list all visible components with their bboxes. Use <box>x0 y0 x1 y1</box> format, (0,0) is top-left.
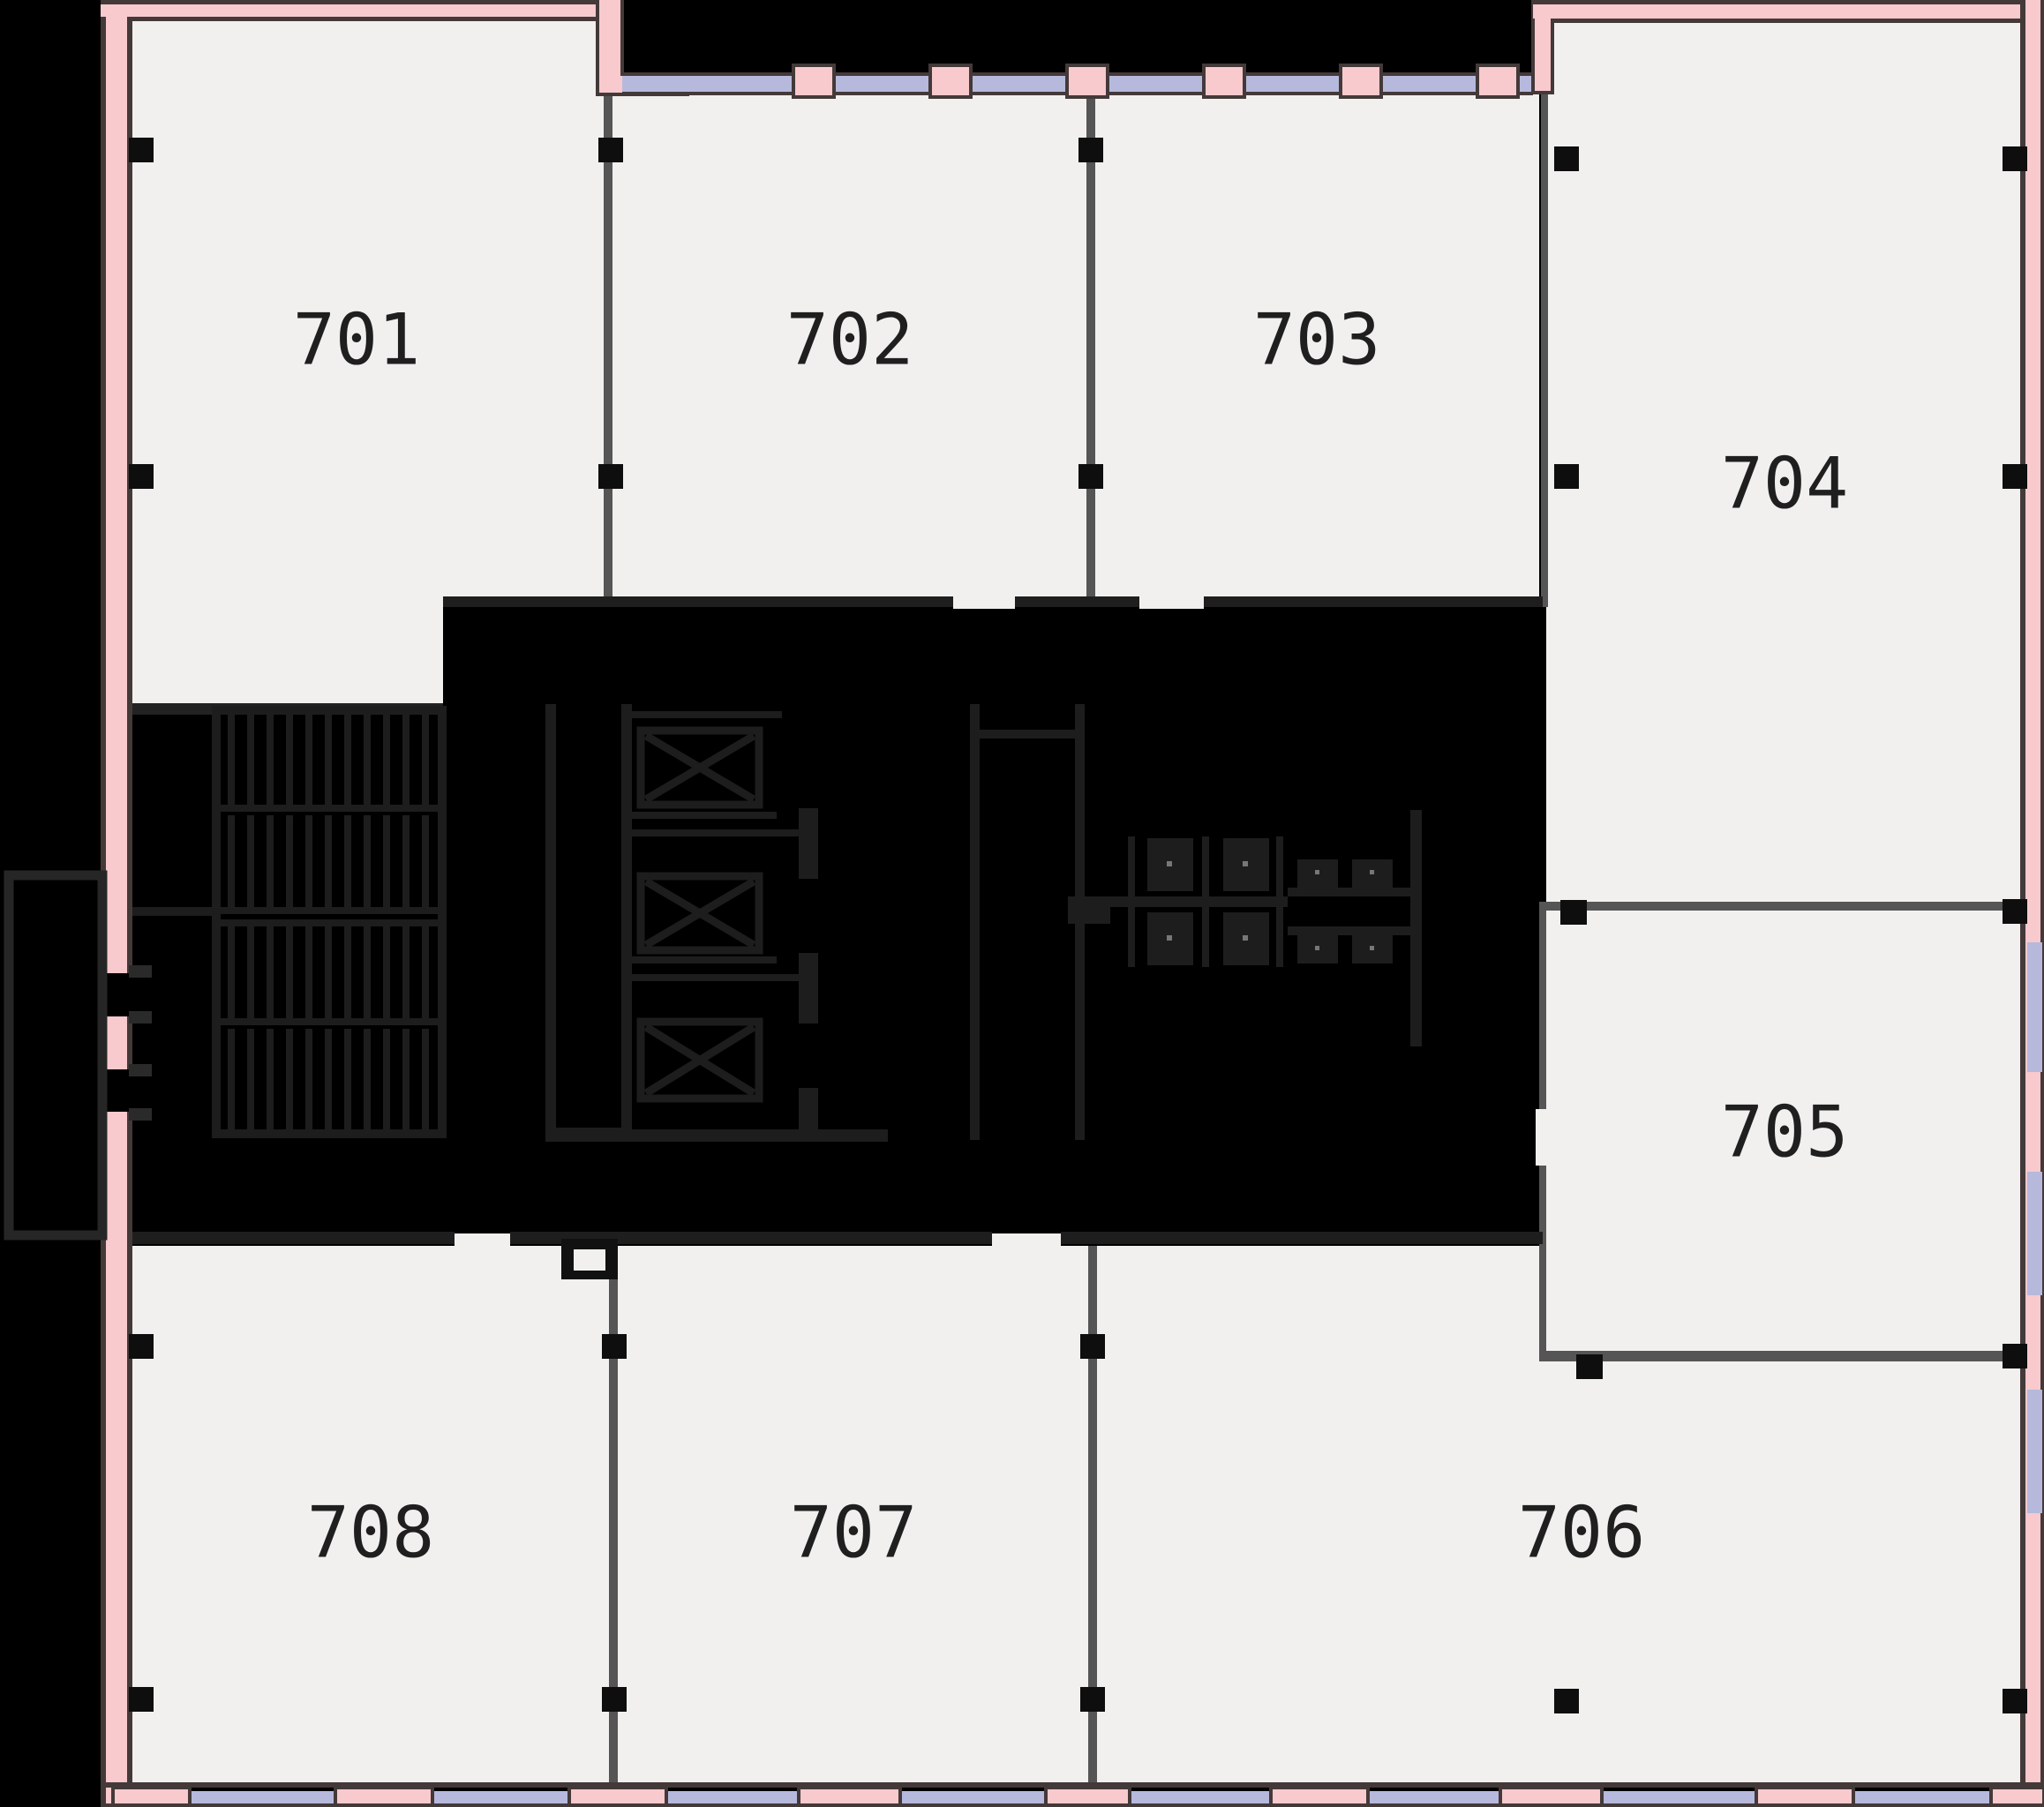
column <box>1576 1354 1603 1379</box>
left-wall-door-gap-1 <box>104 973 132 1016</box>
duct-opening <box>574 1249 605 1271</box>
door-gap-702-core <box>953 596 1015 609</box>
floor-plan-svg: 701702703704705706707708 <box>0 0 2044 1807</box>
room-label-705: 705 <box>1721 1091 1849 1173</box>
top-wall-701 <box>101 0 622 21</box>
sink-counter-top <box>1288 888 1420 896</box>
column <box>598 138 623 162</box>
room-label-702: 702 <box>786 299 914 381</box>
room-label-703: 703 <box>1253 299 1381 381</box>
core-bottom-wall-seg3 <box>1061 1232 1543 1244</box>
pier <box>793 65 834 97</box>
column <box>1554 146 1579 171</box>
door-gap-703-core <box>1139 596 1204 609</box>
core-top-wall-seg1 <box>443 596 953 607</box>
room-label-706: 706 <box>1518 1492 1646 1574</box>
corridor-wall-left <box>970 704 980 1140</box>
column <box>129 464 154 489</box>
stair-landing-wall <box>131 907 216 916</box>
column <box>1078 138 1103 162</box>
stair-treads <box>216 715 442 1129</box>
wall-702-703 <box>1086 92 1095 607</box>
column <box>2003 1689 2027 1713</box>
column <box>1080 1334 1105 1359</box>
floor-plan: 701702703704705706707708 <box>0 0 2044 1807</box>
wall-701-702 <box>604 94 612 604</box>
top-wall-704 <box>1533 0 2044 23</box>
stall-partition-horizontal <box>1085 896 1288 907</box>
column <box>129 1687 154 1712</box>
service-duct <box>561 1239 618 1279</box>
wall-705-bottom <box>1539 1351 2024 1361</box>
column <box>2003 464 2027 489</box>
column <box>2003 899 2027 924</box>
stall-partition-v2 <box>1202 836 1209 967</box>
column <box>129 1334 154 1359</box>
door-gap-708-core <box>455 1233 510 1248</box>
door-gap-707-core <box>992 1233 1061 1248</box>
core-bottom-wall-seg1 <box>104 1232 455 1244</box>
wall-703-704 <box>1541 88 1548 607</box>
core-top-wall-seg3 <box>1204 596 1543 607</box>
bottom-wall-band <box>101 1782 2044 1807</box>
column <box>598 464 623 489</box>
stall-partition-v3 <box>1276 836 1283 967</box>
column <box>129 138 154 162</box>
lobby-wall-right <box>621 704 632 1142</box>
restroom-wall-right <box>1410 810 1422 1046</box>
stall-partition-v1 <box>1128 836 1135 967</box>
door-gap-705-core <box>1536 1109 1548 1166</box>
wall-705-top <box>1539 902 2024 911</box>
column <box>602 1687 627 1712</box>
column <box>2003 1344 2027 1368</box>
sink-counter-bottom <box>1288 926 1420 935</box>
pier <box>1204 65 1244 97</box>
pier <box>1341 65 1381 97</box>
right-wall-windows <box>2027 942 2042 1513</box>
column <box>1560 900 1587 925</box>
corridor-wall-top <box>970 730 1085 739</box>
room-label-707: 707 <box>790 1492 918 1574</box>
column <box>1554 464 1579 489</box>
column <box>1554 1689 1579 1713</box>
pier <box>1067 65 1108 97</box>
column <box>1080 1687 1105 1712</box>
pier <box>930 65 971 97</box>
column <box>2003 146 2027 171</box>
room-label-708: 708 <box>307 1492 435 1574</box>
room-label-701: 701 <box>293 299 421 381</box>
room-label-704: 704 <box>1721 443 1849 525</box>
core-top-wall-seg2 <box>1015 596 1139 607</box>
column <box>602 1334 627 1359</box>
column <box>1078 464 1103 489</box>
lobby-wall-left <box>545 704 556 1142</box>
pier <box>1477 65 1518 97</box>
left-wall-door-gap-2 <box>104 1069 132 1112</box>
